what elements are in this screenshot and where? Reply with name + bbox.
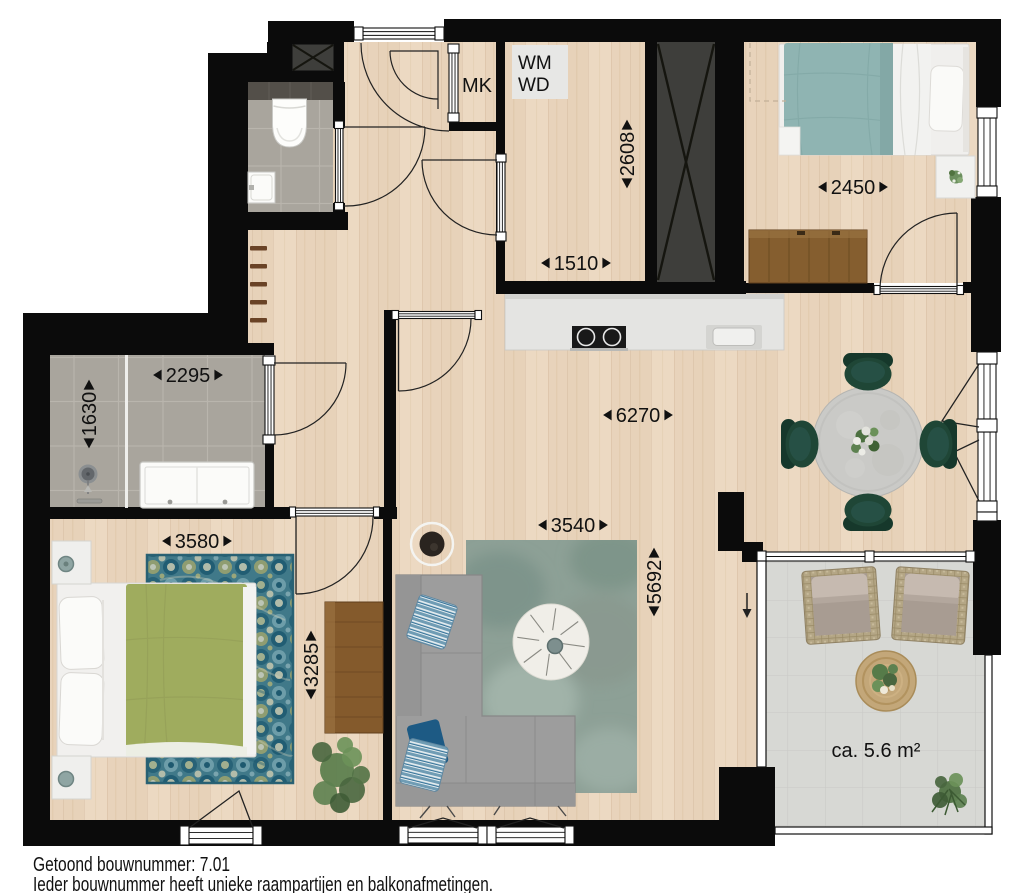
svg-text:3540: 3540 xyxy=(551,515,596,537)
svg-text:2295: 2295 xyxy=(166,365,211,387)
svg-text:3285: 3285 xyxy=(301,643,323,688)
svg-text:ca. 5.6 m²: ca. 5.6 m² xyxy=(832,740,921,762)
svg-text:Ieder bouwnummer heeft unieke: Ieder bouwnummer heeft unieke raampartij… xyxy=(33,874,493,893)
svg-text:WD: WD xyxy=(518,75,550,96)
svg-text:Getoond bouwnummer: 7.01: Getoond bouwnummer: 7.01 xyxy=(33,854,230,876)
svg-text:6270: 6270 xyxy=(616,405,661,427)
svg-text:3580: 3580 xyxy=(175,531,220,553)
svg-text:MK: MK xyxy=(462,75,493,97)
svg-text:WM: WM xyxy=(518,53,552,74)
svg-text:2450: 2450 xyxy=(831,177,876,199)
svg-text:2608: 2608 xyxy=(617,132,639,177)
svg-text:1510: 1510 xyxy=(554,253,599,275)
svg-text:1630: 1630 xyxy=(79,392,101,437)
svg-text:5692: 5692 xyxy=(644,560,666,605)
